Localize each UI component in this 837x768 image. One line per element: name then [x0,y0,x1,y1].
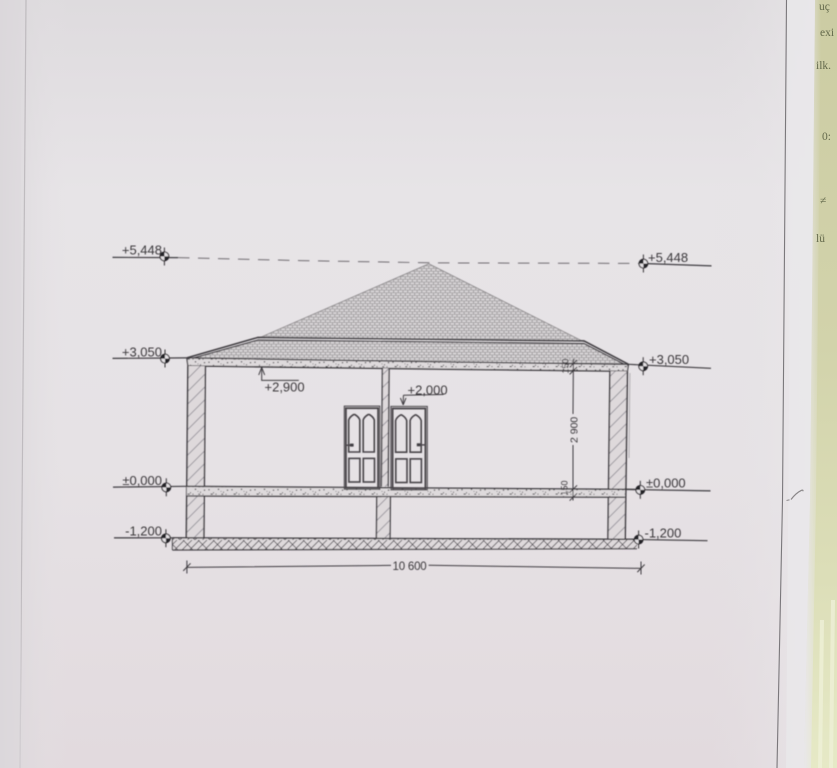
svg-text:10 600: 10 600 [393,561,427,573]
svg-text:-1,200: -1,200 [645,526,682,541]
svg-text:ilk.: ilk. [816,60,831,72]
svg-text:±0,000: ±0,000 [646,476,686,491]
svg-text:±0,000: ±0,000 [122,473,162,488]
svg-text:+2,900: +2,900 [265,380,305,395]
svg-text:+2,000: +2,000 [408,382,448,397]
svg-text:150: 150 [560,480,570,495]
svg-text:+3,050: +3,050 [122,345,162,360]
svg-text:-1,200: -1,200 [125,524,162,539]
svg-text:uç: uç [819,1,830,13]
svg-text:≠: ≠ [820,195,826,207]
svg-text:+5,448: +5,448 [122,243,162,258]
svg-text:2 900: 2 900 [569,417,581,443]
svg-text:+5,448: +5,448 [648,250,688,265]
svg-text:exi: exi [820,27,834,39]
svg-text:lü: lü [816,233,825,245]
svg-text:150: 150 [561,358,571,373]
svg-text:0:: 0: [822,131,831,143]
svg-text:+3,050: +3,050 [649,352,689,367]
